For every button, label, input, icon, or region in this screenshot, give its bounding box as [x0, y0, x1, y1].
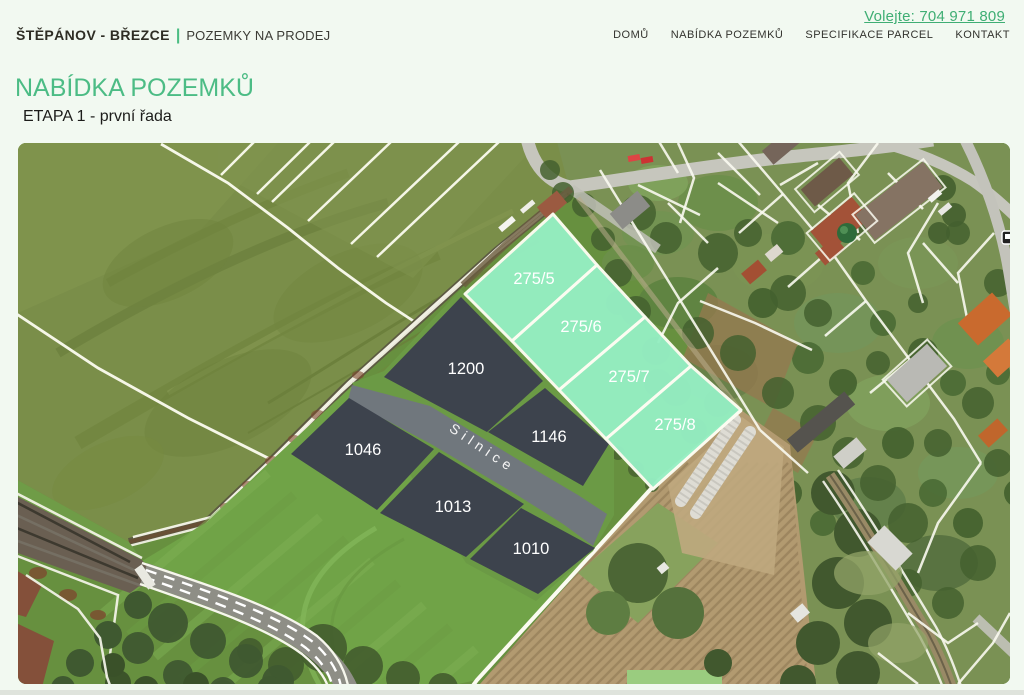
svg-text:1146: 1146	[531, 428, 566, 446]
svg-text:275/6: 275/6	[560, 318, 601, 336]
svg-text:1013: 1013	[435, 498, 472, 516]
svg-text:275/7: 275/7	[608, 368, 649, 386]
svg-text:1010: 1010	[513, 540, 550, 558]
svg-text:275/5: 275/5	[513, 270, 554, 288]
svg-text:275/8: 275/8	[654, 416, 695, 434]
svg-text:1200: 1200	[448, 360, 485, 378]
svg-text:1046: 1046	[345, 441, 382, 459]
